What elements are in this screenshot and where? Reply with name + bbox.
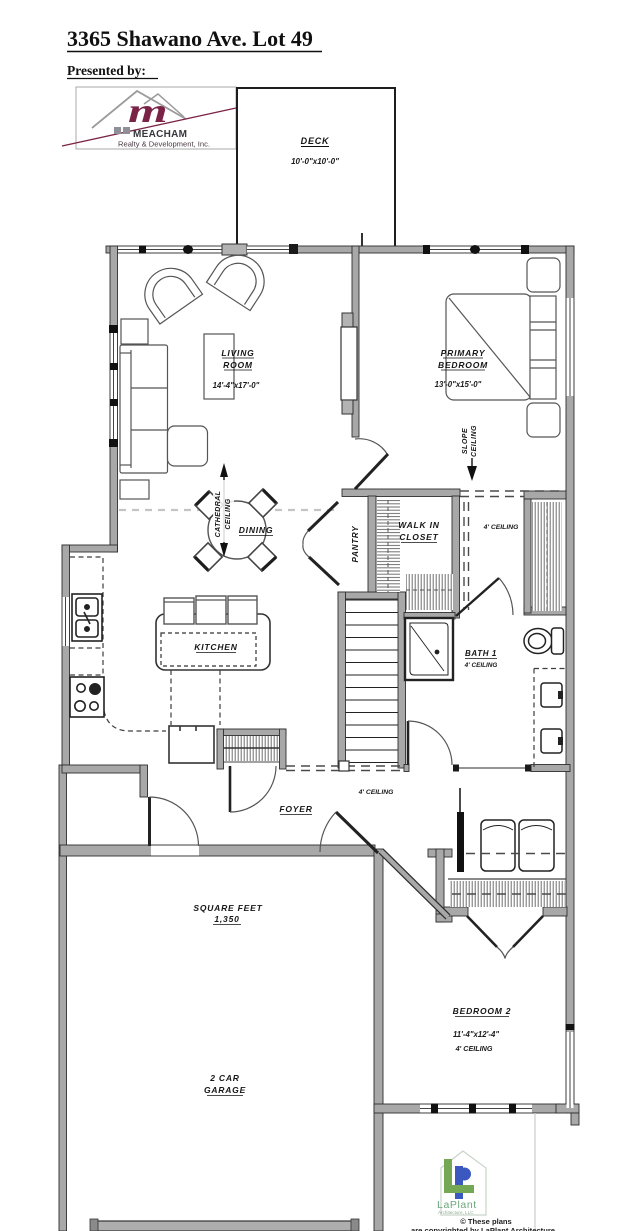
svg-text:CATHEDRAL: CATHEDRAL <box>215 491 222 538</box>
svg-text:are copyrighted by LaPlant Arc: are copyrighted by LaPlant Architecture <box>411 1226 555 1231</box>
svg-text:Architecture, LLC: Architecture, LLC <box>438 1210 474 1215</box>
svg-text:14'-4"x17'-0": 14'-4"x17'-0" <box>213 381 260 390</box>
svg-text:DINING: DINING <box>239 525 274 535</box>
svg-text:DECK: DECK <box>301 136 330 146</box>
svg-text:ROOM: ROOM <box>223 360 253 370</box>
svg-text:PANTRY: PANTRY <box>351 526 360 563</box>
svg-text:4' CEILING: 4' CEILING <box>483 524 520 531</box>
svg-text:1,350: 1,350 <box>214 914 239 924</box>
svg-text:SQUARE FEET: SQUARE FEET <box>193 903 262 913</box>
svg-text:LIVING: LIVING <box>221 348 254 358</box>
svg-text:m: m <box>128 92 168 130</box>
svg-text:BEDROOM 2: BEDROOM 2 <box>453 1006 512 1016</box>
svg-text:WALK IN: WALK IN <box>398 520 440 530</box>
svg-text:Presented by:: Presented by: <box>67 63 146 78</box>
svg-text:PRIMARY: PRIMARY <box>441 348 486 358</box>
svg-text:4' CEILING: 4' CEILING <box>455 1044 493 1053</box>
svg-text:FOYER: FOYER <box>279 804 312 814</box>
svg-text:GARAGE: GARAGE <box>204 1085 246 1095</box>
svg-text:11'-4"x12'-4": 11'-4"x12'-4" <box>453 1030 499 1039</box>
svg-text:4' CEILING: 4' CEILING <box>358 789 395 796</box>
svg-text:CEILING: CEILING <box>225 498 232 529</box>
svg-text:BEDROOM: BEDROOM <box>438 360 488 370</box>
svg-text:2 CAR: 2 CAR <box>209 1073 240 1083</box>
svg-text:© These plans: © These plans <box>460 1217 512 1226</box>
svg-text:CEILING: CEILING <box>471 425 478 457</box>
svg-text:KITCHEN: KITCHEN <box>194 642 237 652</box>
svg-text:3365 Shawano Ave. Lot 49: 3365 Shawano Ave. Lot 49 <box>67 26 313 51</box>
svg-text:4' CEILING: 4' CEILING <box>464 662 498 669</box>
svg-text:13'-0"x15'-0": 13'-0"x15'-0" <box>435 380 482 389</box>
svg-text:BATH 1: BATH 1 <box>465 649 497 658</box>
svg-text:SLOPE: SLOPE <box>462 428 469 454</box>
svg-text:CLOSET: CLOSET <box>399 532 438 542</box>
svg-text:10'-0"x10'-0": 10'-0"x10'-0" <box>291 157 339 166</box>
svg-text:MEACHAM: MEACHAM <box>133 129 187 140</box>
svg-text:Realty & Development, Inc.: Realty & Development, Inc. <box>118 140 210 149</box>
